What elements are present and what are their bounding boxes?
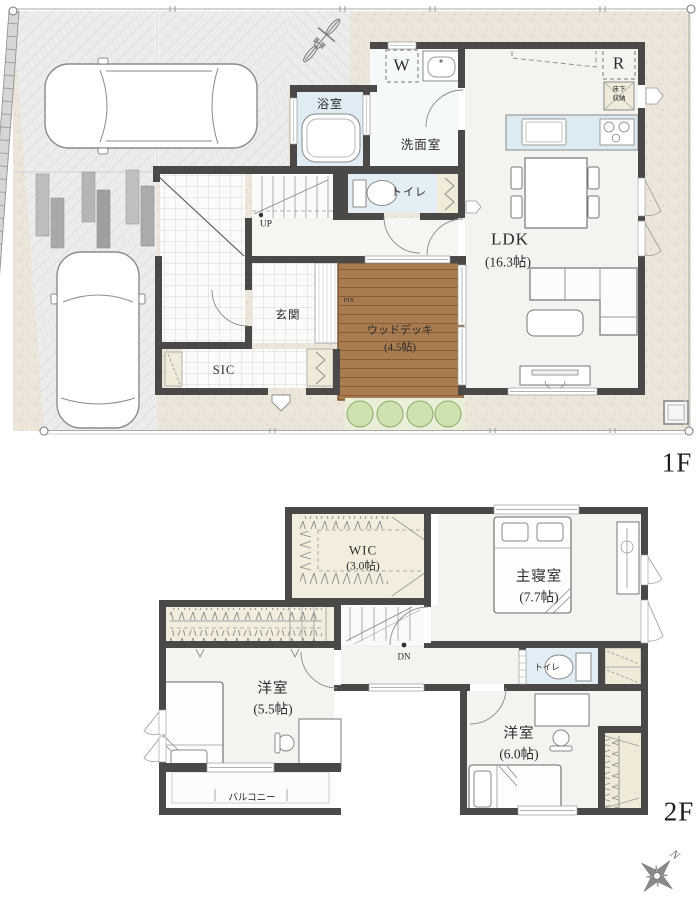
car-icon-2	[51, 252, 145, 428]
room-size-wic: (3.0帖)	[346, 561, 380, 573]
room-label-bath: 浴室	[317, 98, 343, 110]
room-label-deck: ウッドデッキ	[367, 326, 433, 337]
garden-bushes	[345, 398, 465, 431]
floor-plan-sheet: N 浴室 W 洗面室 トイレ R 床下 収納 UP LDK (16.3帖) 玄関…	[0, 0, 699, 900]
underfloor-storage-label-2: 収納	[613, 96, 626, 103]
room-label-toilet-2f: トイレ	[534, 663, 560, 672]
room-label-room60: 洋室	[504, 727, 535, 742]
room-size-master: (7.7帖)	[519, 590, 558, 604]
compass-north-label: N	[667, 846, 684, 863]
room-label-wic: WIC	[349, 544, 377, 557]
underfloor-storage-label-1: 床下	[613, 87, 626, 94]
room-label-sic: SIC	[213, 364, 235, 377]
room-size-ldk: (16.3帖)	[485, 255, 531, 269]
hall-storage	[307, 349, 333, 386]
room-label-room55: 洋室	[258, 682, 289, 697]
room-size-deck: (4.5帖)	[384, 343, 416, 354]
kitchen-sink-icon	[522, 119, 566, 145]
floor-plan-drawing: N	[0, 0, 699, 900]
room-label-balcony: バルコニー	[228, 794, 275, 804]
floor1-title: 1F	[662, 450, 693, 477]
room-label-entrance: 玄関	[276, 310, 301, 322]
car-icon	[45, 58, 257, 154]
bed-room55	[164, 682, 223, 771]
stove-icon	[600, 119, 634, 145]
room-size-room55: (5.5帖)	[253, 702, 292, 716]
fix-window	[315, 263, 338, 343]
floor2-title: 2F	[664, 799, 695, 826]
dresser-master	[617, 522, 639, 594]
stairs-down-label: DN	[398, 653, 411, 662]
utility-box	[664, 401, 688, 424]
room-label-master: 主寝室	[516, 570, 563, 585]
fridge-marker: R	[613, 55, 625, 72]
room-label-toilet-1f: トイレ	[391, 188, 427, 199]
room-size-room60: (6.0帖)	[499, 747, 538, 761]
fix-window-label: FIX	[344, 298, 354, 305]
washer-marker: W	[393, 57, 410, 74]
room-label-ldk: LDK	[491, 231, 529, 248]
washbasin-icon	[423, 51, 460, 81]
stairs-up-label: UP	[260, 220, 272, 230]
coffee-table-icon	[527, 310, 583, 336]
room-label-washroom: 洗面室	[401, 139, 442, 152]
bathtub-icon	[302, 114, 360, 162]
compass-icon: N	[629, 836, 695, 900]
